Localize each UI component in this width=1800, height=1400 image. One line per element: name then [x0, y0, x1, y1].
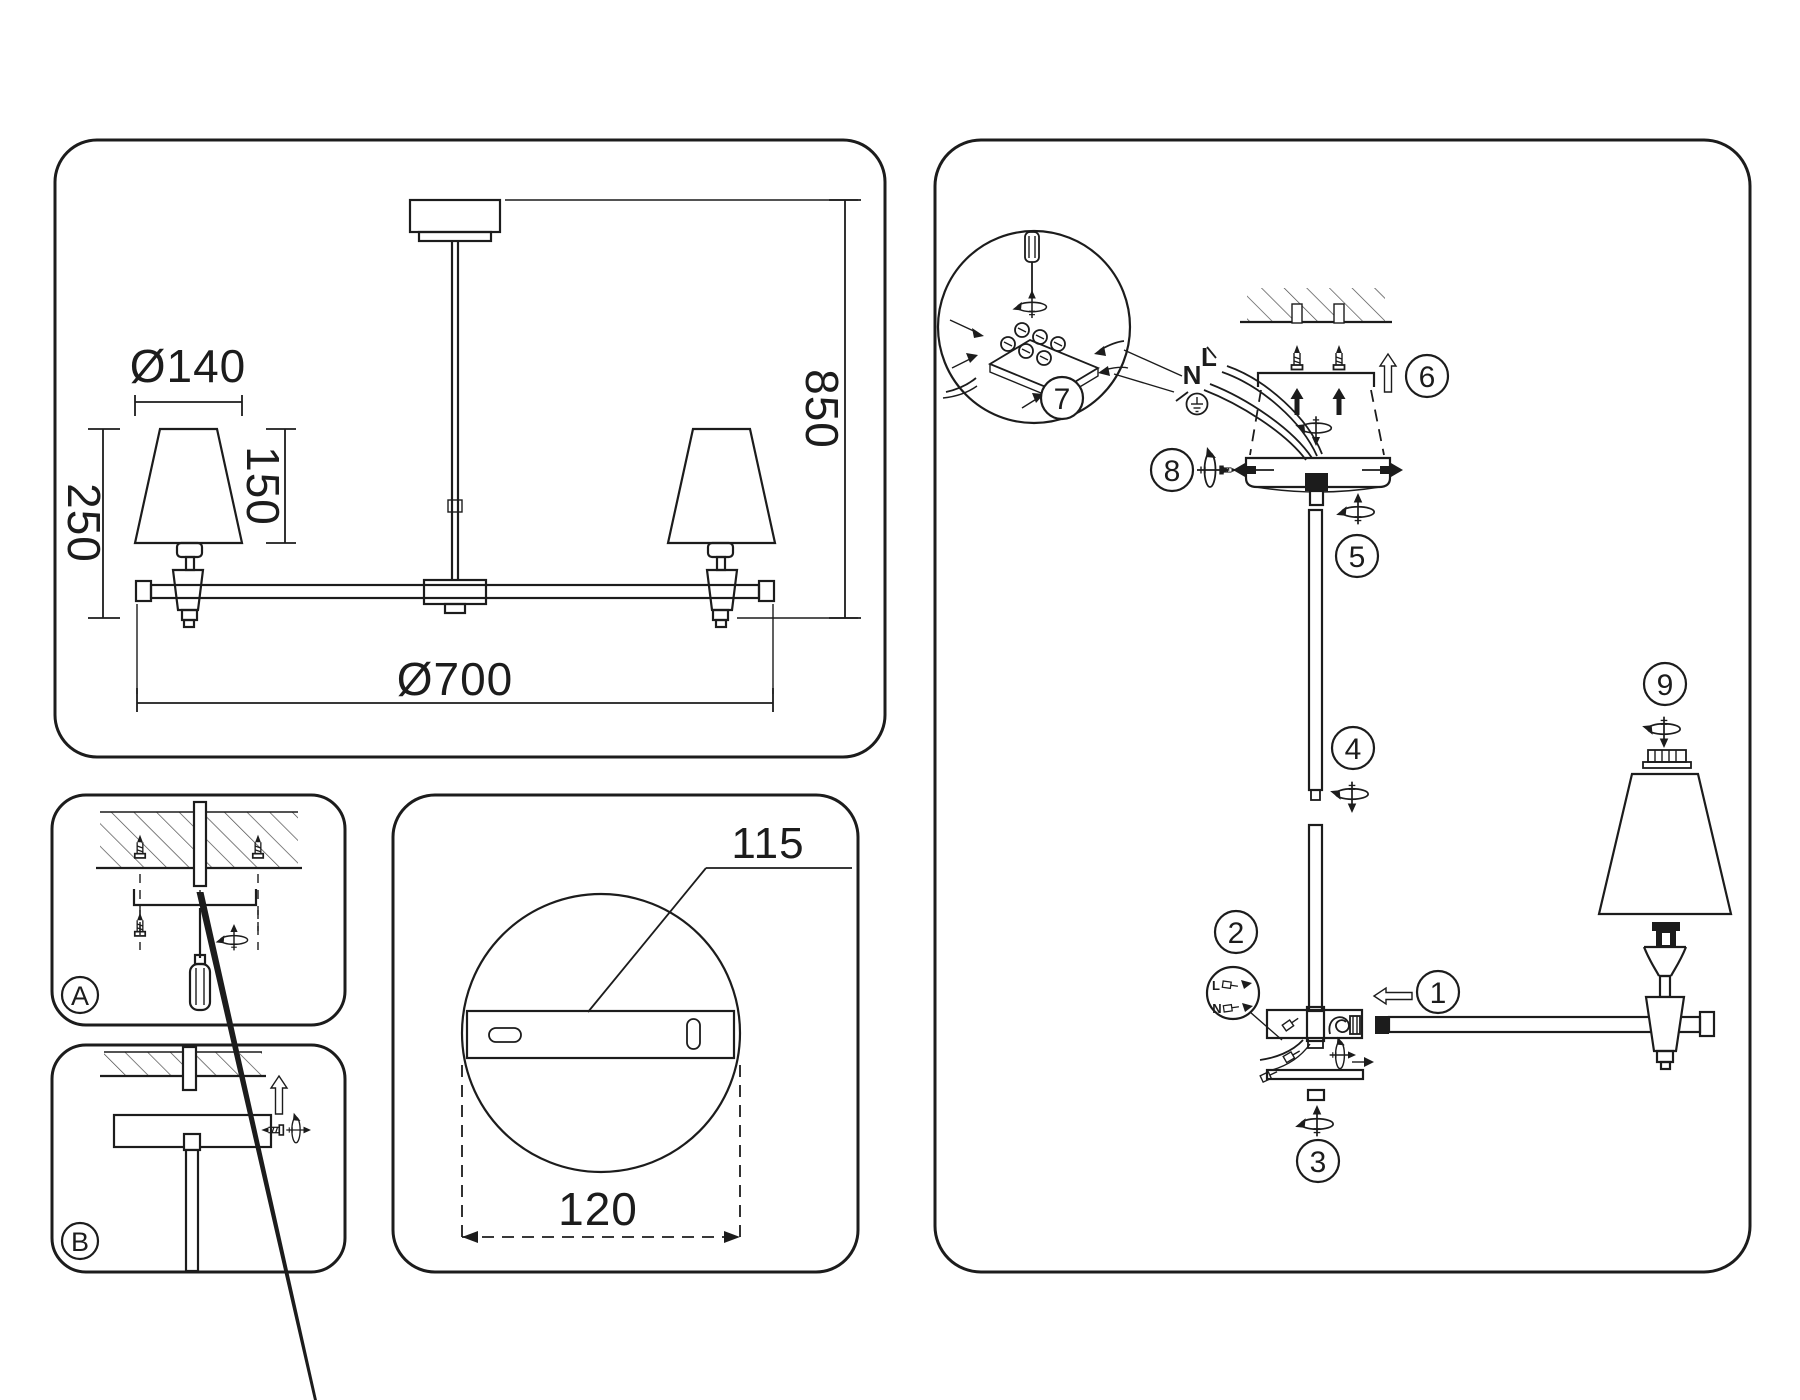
- pipe-stub: [194, 802, 206, 886]
- set-screw-icon: [261, 1125, 283, 1135]
- mount-bar: [467, 1011, 734, 1058]
- drill-hole: [1292, 304, 1302, 323]
- wire-coil: [1329, 1017, 1349, 1034]
- dim-label-115: 115: [731, 819, 804, 868]
- ceiling-hatch: [1247, 288, 1385, 322]
- step-1-number: 1: [1430, 977, 1447, 1010]
- detail-neutral-label: N: [1212, 1001, 1221, 1016]
- lamp-wires: [1260, 1040, 1303, 1060]
- down-rod: [186, 1150, 198, 1271]
- finial-nut: [1308, 1090, 1324, 1100]
- dim-label-250: 250: [58, 483, 110, 563]
- dim-label-700: Ø700: [397, 653, 514, 705]
- screw-icon: [1292, 345, 1303, 370]
- dim-fixture-diameter: Ø700: [137, 604, 773, 712]
- shade-assembly: 9: [1599, 663, 1731, 1069]
- dim-shade-diameter: Ø140: [130, 340, 247, 416]
- arrow-up-icon: [271, 1076, 287, 1114]
- wire-plug-icon: [1282, 1015, 1300, 1030]
- left-shade: [135, 429, 242, 543]
- dim-label-120: 120: [558, 1183, 638, 1235]
- rotate-arrow-icon: [1642, 717, 1680, 748]
- chandelier-overview: Ø140 150 250 850: [58, 200, 861, 712]
- rotate-arrow-icon: [1330, 782, 1368, 813]
- cable-gland: [1305, 473, 1328, 491]
- terminal-base: [990, 340, 1098, 392]
- rotate-arrow-icon: [1336, 493, 1374, 524]
- step-a-label: A: [71, 981, 89, 1011]
- shade-finial: [1643, 750, 1691, 768]
- terminal-block-detail: [938, 231, 1130, 423]
- lamp-socket: [1652, 922, 1680, 947]
- step-5-number: 5: [1349, 541, 1366, 574]
- detail-line-label: L: [1212, 978, 1220, 993]
- drill-hole: [1334, 304, 1344, 323]
- wire-connect-detail: L N: [1207, 967, 1282, 1040]
- step-6-number: 6: [1419, 361, 1436, 394]
- mounting-bracket: [134, 889, 256, 905]
- dim-fixture-height: 850: [505, 200, 861, 618]
- screw-icon: [1334, 345, 1345, 370]
- step-7-number: 7: [1054, 383, 1071, 416]
- canopy: [410, 200, 500, 232]
- assembly-diagram: Ø140 150 250 850: [0, 0, 1800, 1400]
- arrow-up-solid-icon: [1333, 388, 1346, 415]
- step-4-number: 4: [1345, 733, 1362, 766]
- instruction-sheet: Ø140 150 250 850: [0, 0, 1800, 1400]
- canopy-bottom-view: 115 120: [462, 819, 852, 1245]
- dim-label-140: Ø140: [130, 340, 247, 392]
- wire-neutral-label: N: [1183, 360, 1202, 390]
- dim-lamp-height: 250: [58, 429, 120, 618]
- candle-cup: [1644, 947, 1686, 976]
- step-a-drawing: A: [62, 802, 400, 1400]
- rod-lower: [1309, 825, 1322, 1011]
- pipe-stub: [183, 1047, 196, 1090]
- right-shade: [668, 429, 775, 543]
- step-9-number: 9: [1657, 669, 1674, 702]
- rotate-arrow-icon: [1197, 447, 1230, 487]
- terminal-screws: [1001, 323, 1065, 365]
- step-b-drawing: B: [62, 1047, 311, 1271]
- rod-upper: [1309, 510, 1322, 790]
- dim-label-150: 150: [237, 446, 289, 526]
- leader-line: [588, 868, 706, 1012]
- wire-arrows: [943, 320, 1128, 408]
- center-hub: [1267, 1010, 1362, 1038]
- set-screw-right: [1362, 463, 1403, 477]
- step-8-number: 8: [1164, 455, 1181, 488]
- arm-thread: [1375, 1016, 1389, 1034]
- leader-line: [1114, 374, 1174, 392]
- rotate-arrow-icon: [1330, 1037, 1356, 1069]
- screwdriver-icon: [1025, 232, 1039, 296]
- ground-terminal-icon: [1187, 394, 1208, 415]
- screwdriver-icon: [190, 890, 400, 1400]
- exploded-assembly: 7 N L 6: [938, 231, 1731, 1182]
- step-3-number: 3: [1310, 1146, 1327, 1179]
- center-hub: [424, 580, 486, 604]
- cross-arm: [151, 585, 759, 598]
- arm-cone: [1646, 997, 1684, 1051]
- leader-line: [1124, 350, 1182, 376]
- set-screw-left: [1233, 463, 1274, 477]
- rotate-arrow-icon: [216, 924, 248, 950]
- hub-cover-plate: [1267, 1070, 1363, 1079]
- canopy: [1246, 458, 1390, 505]
- rotate-arrow-icon: [286, 1113, 311, 1143]
- rotate-arrow-icon: [1012, 290, 1046, 318]
- dim-shade-height: 150: [237, 429, 296, 543]
- step-2-number: 2: [1228, 917, 1245, 950]
- step-b-label: B: [71, 1227, 89, 1257]
- arrow-left-icon: [1374, 988, 1412, 1004]
- lamp-shade: [1599, 774, 1731, 914]
- dim-label-850: 850: [796, 369, 848, 449]
- rotate-arrow-icon: [1295, 1105, 1333, 1136]
- arrow-up-icon: [1380, 354, 1396, 392]
- mounting-bracket: [1258, 373, 1374, 387]
- rotate-arrow-icon: [1295, 416, 1331, 446]
